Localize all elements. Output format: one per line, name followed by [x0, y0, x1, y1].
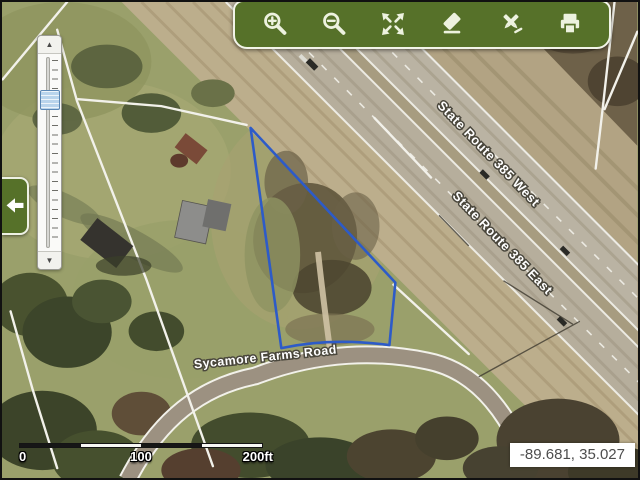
- zoom-slider-ticks: [52, 60, 58, 245]
- zoom-slider-track[interactable]: [46, 57, 50, 248]
- printer-icon: [556, 10, 584, 41]
- scale-bar: 0 100 200ft: [19, 443, 265, 465]
- scale-label-mid: 100: [130, 449, 152, 464]
- expand-arrows-icon: [379, 10, 407, 41]
- zoom-out-button[interactable]: [312, 8, 356, 44]
- side-panel-toggle-button[interactable]: [2, 177, 29, 235]
- scale-segment: [141, 444, 202, 447]
- zoom-slider-down-button[interactable]: ▼: [38, 251, 61, 269]
- cursor-coordinates-readout: -89.681, 35.027: [510, 443, 635, 467]
- scale-label-start: 0: [19, 449, 26, 464]
- scale-segment: [202, 444, 263, 447]
- arrow-down-icon: ▼: [46, 256, 54, 265]
- zoom-slider-up-button[interactable]: ▲: [38, 36, 61, 54]
- zoom-in-button[interactable]: [253, 8, 297, 44]
- aerial-imagery-layer: [2, 2, 638, 478]
- full-extent-button[interactable]: [371, 8, 415, 44]
- drawing-tools-icon: [497, 10, 525, 41]
- eraser-icon: [438, 10, 466, 41]
- draw-measure-button[interactable]: [489, 8, 533, 44]
- map-canvas[interactable]: State Route 385 West State Route 385 Eas…: [2, 2, 638, 478]
- scale-bar-segments: [19, 443, 263, 448]
- magnifier-minus-icon: [320, 10, 348, 41]
- zoom-slider: ▲ ▼: [37, 35, 62, 270]
- scale-label-end: 200ft: [243, 449, 273, 464]
- map-toolbar: [233, 0, 611, 49]
- arrow-up-icon: ▲: [46, 40, 54, 49]
- print-button[interactable]: [548, 8, 592, 44]
- arrow-left-icon: [4, 194, 26, 219]
- scale-segment: [81, 444, 142, 447]
- magnifier-plus-icon: [261, 10, 289, 41]
- clear-graphics-button[interactable]: [430, 8, 474, 44]
- map-viewer-window: State Route 385 West State Route 385 Eas…: [0, 0, 640, 480]
- scale-segment: [20, 444, 81, 447]
- zoom-slider-handle[interactable]: [40, 90, 60, 110]
